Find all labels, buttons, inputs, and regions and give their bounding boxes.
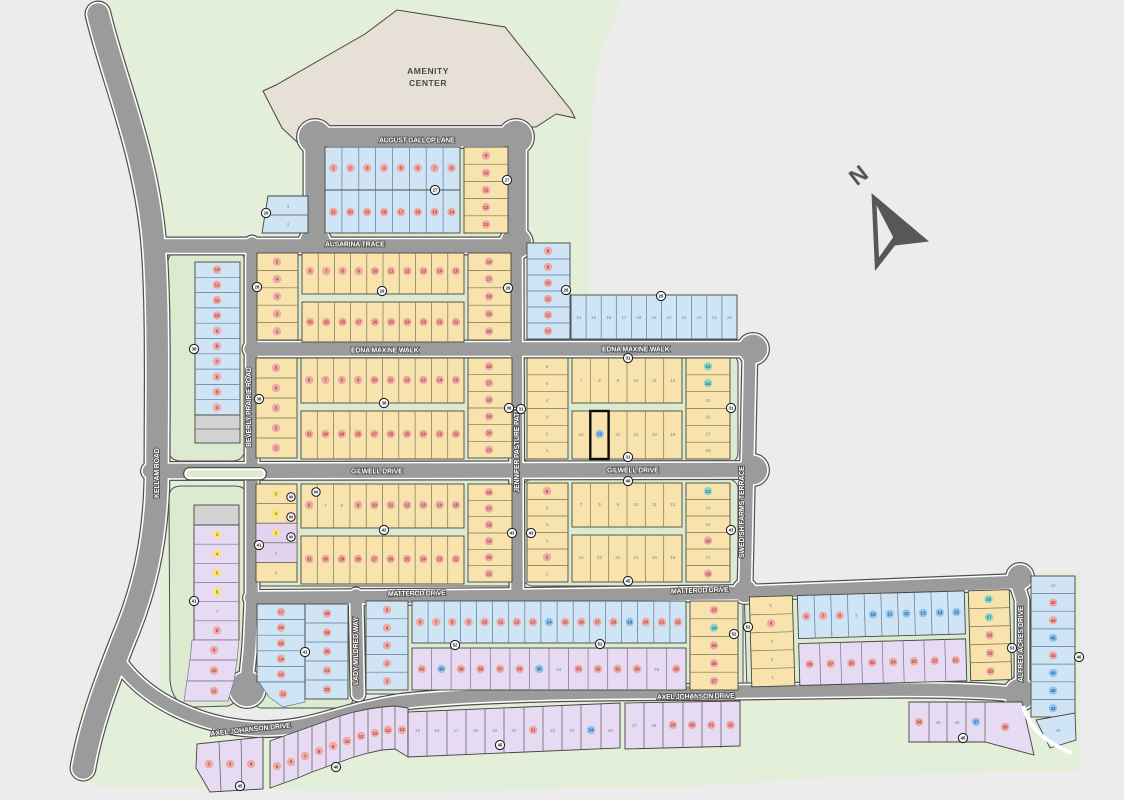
- svg-text:21: 21: [659, 620, 665, 625]
- svg-text:15: 15: [705, 522, 711, 527]
- svg-text:6: 6: [290, 759, 293, 764]
- svg-text:1: 1: [386, 679, 389, 684]
- svg-text:5: 5: [276, 764, 279, 769]
- svg-text:27: 27: [356, 320, 362, 325]
- svg-text:6: 6: [419, 620, 422, 625]
- svg-text:8: 8: [598, 378, 601, 383]
- svg-text:10: 10: [545, 281, 551, 286]
- svg-text:14: 14: [576, 315, 582, 320]
- svg-text:7: 7: [435, 620, 438, 625]
- svg-text:6: 6: [309, 269, 312, 274]
- svg-text:20: 20: [667, 315, 673, 320]
- svg-text:19: 19: [651, 315, 657, 320]
- svg-text:15: 15: [453, 503, 459, 508]
- svg-text:43: 43: [1050, 583, 1056, 588]
- svg-text:9: 9: [332, 744, 335, 749]
- svg-text:15: 15: [705, 398, 711, 403]
- svg-text:11: 11: [215, 298, 220, 303]
- svg-text:6: 6: [308, 378, 311, 383]
- svg-text:21: 21: [634, 432, 640, 437]
- svg-text:40: 40: [1055, 728, 1061, 733]
- svg-text:24: 24: [890, 659, 896, 664]
- svg-text:46: 46: [1077, 655, 1082, 660]
- svg-text:53: 53: [1010, 646, 1015, 651]
- svg-text:22: 22: [675, 620, 681, 625]
- svg-text:14: 14: [937, 610, 943, 615]
- svg-text:GILWELL DRIVE: GILWELL DRIVE: [351, 469, 403, 476]
- svg-text:12: 12: [670, 378, 676, 383]
- svg-text:2: 2: [276, 312, 279, 317]
- svg-text:2: 2: [349, 166, 352, 171]
- svg-text:30: 30: [690, 723, 696, 728]
- svg-text:CENTER: CENTER: [409, 78, 447, 88]
- svg-text:42: 42: [382, 528, 387, 533]
- svg-text:34: 34: [556, 667, 562, 672]
- svg-text:13: 13: [920, 611, 926, 616]
- svg-text:13: 13: [385, 728, 391, 733]
- svg-text:7: 7: [580, 502, 583, 507]
- svg-text:29: 29: [506, 286, 511, 291]
- svg-text:21: 21: [634, 555, 640, 560]
- svg-text:52: 52: [732, 632, 737, 637]
- svg-text:22: 22: [453, 432, 459, 437]
- svg-text:37: 37: [498, 667, 504, 672]
- svg-text:4: 4: [216, 551, 219, 556]
- svg-text:5: 5: [546, 506, 549, 511]
- svg-text:34: 34: [916, 720, 922, 725]
- svg-text:22: 22: [932, 658, 938, 663]
- svg-text:43: 43: [729, 528, 734, 533]
- svg-text:16: 16: [579, 620, 585, 625]
- svg-text:8: 8: [341, 378, 344, 383]
- svg-text:10: 10: [483, 170, 489, 175]
- svg-text:6: 6: [417, 166, 420, 171]
- svg-text:19: 19: [987, 651, 993, 656]
- svg-text:38: 38: [1002, 725, 1008, 730]
- svg-text:19: 19: [670, 432, 676, 437]
- svg-text:12: 12: [280, 692, 286, 697]
- svg-text:9: 9: [357, 378, 360, 383]
- svg-text:23: 23: [437, 557, 443, 562]
- svg-text:14: 14: [437, 378, 443, 383]
- svg-text:9: 9: [357, 503, 360, 508]
- svg-text:7: 7: [580, 378, 583, 383]
- svg-text:27: 27: [632, 723, 638, 728]
- svg-text:11: 11: [388, 503, 393, 508]
- svg-text:43: 43: [510, 531, 515, 536]
- svg-text:1: 1: [275, 570, 278, 575]
- svg-text:5: 5: [400, 166, 403, 171]
- svg-text:20: 20: [652, 432, 658, 437]
- svg-text:6: 6: [216, 374, 219, 379]
- svg-text:11: 11: [212, 689, 217, 694]
- svg-text:22: 22: [615, 432, 621, 437]
- svg-text:45: 45: [498, 743, 503, 748]
- svg-text:6: 6: [546, 364, 549, 369]
- svg-text:21: 21: [531, 728, 537, 733]
- svg-text:21: 21: [453, 320, 459, 325]
- svg-text:10: 10: [214, 313, 220, 318]
- svg-text:15: 15: [453, 269, 459, 274]
- svg-text:18: 18: [486, 397, 492, 402]
- svg-text:12: 12: [404, 378, 410, 383]
- svg-text:25: 25: [404, 557, 410, 562]
- svg-text:24: 24: [421, 432, 427, 437]
- svg-text:23: 23: [597, 432, 603, 437]
- svg-text:10: 10: [482, 620, 488, 625]
- svg-text:24: 24: [727, 315, 733, 320]
- svg-text:20: 20: [486, 555, 492, 560]
- svg-text:52: 52: [746, 625, 751, 630]
- svg-text:AMENITY: AMENITY: [407, 66, 449, 76]
- svg-text:15: 15: [591, 315, 597, 320]
- svg-text:2: 2: [386, 661, 389, 666]
- svg-text:13: 13: [421, 378, 427, 383]
- svg-text:15: 15: [415, 728, 421, 733]
- svg-text:3: 3: [366, 166, 369, 171]
- svg-text:12: 12: [514, 620, 520, 625]
- svg-text:9: 9: [617, 378, 620, 383]
- svg-text:3: 3: [275, 406, 278, 411]
- svg-text:10: 10: [634, 378, 640, 383]
- svg-text:41: 41: [192, 599, 197, 604]
- svg-text:13: 13: [278, 672, 284, 677]
- svg-text:3: 3: [276, 294, 279, 299]
- svg-text:7: 7: [216, 359, 219, 364]
- svg-text:2: 2: [546, 431, 549, 436]
- svg-text:29: 29: [339, 432, 345, 437]
- svg-text:24: 24: [711, 625, 717, 630]
- svg-text:27: 27: [505, 178, 510, 183]
- svg-text:11: 11: [652, 378, 657, 383]
- svg-text:12: 12: [483, 205, 489, 210]
- svg-text:19: 19: [492, 728, 498, 733]
- svg-text:17: 17: [986, 615, 992, 620]
- svg-text:3: 3: [216, 532, 219, 537]
- svg-text:13: 13: [530, 620, 536, 625]
- svg-text:5: 5: [386, 608, 389, 613]
- svg-text:1: 1: [275, 446, 278, 451]
- svg-text:12: 12: [904, 611, 910, 616]
- svg-text:23: 23: [569, 728, 575, 733]
- svg-text:30: 30: [323, 432, 329, 437]
- svg-text:LADY MILDRED WAY: LADY MILDRED WAY: [353, 617, 360, 685]
- svg-text:31: 31: [307, 557, 313, 562]
- svg-text:12: 12: [404, 503, 410, 508]
- svg-text:7: 7: [433, 166, 436, 171]
- svg-text:36: 36: [507, 406, 512, 411]
- svg-text:46: 46: [334, 765, 339, 770]
- svg-text:26: 26: [711, 661, 717, 666]
- svg-text:43: 43: [1050, 671, 1056, 676]
- svg-text:14: 14: [705, 506, 711, 511]
- svg-text:22: 22: [437, 320, 443, 325]
- svg-text:11: 11: [388, 378, 393, 383]
- svg-text:5: 5: [275, 366, 278, 371]
- svg-text:10: 10: [372, 378, 378, 383]
- svg-text:25: 25: [389, 320, 395, 325]
- svg-text:28: 28: [255, 285, 260, 290]
- svg-text:21: 21: [331, 210, 337, 215]
- svg-text:23: 23: [711, 608, 717, 613]
- svg-text:16: 16: [486, 364, 492, 369]
- svg-text:30: 30: [308, 320, 314, 325]
- svg-text:18: 18: [324, 611, 330, 616]
- svg-text:27: 27: [372, 557, 378, 562]
- svg-text:45: 45: [626, 579, 631, 584]
- svg-text:M: M: [289, 515, 293, 520]
- svg-text:18: 18: [611, 620, 617, 625]
- svg-text:23: 23: [421, 320, 427, 325]
- svg-text:26: 26: [264, 211, 269, 216]
- svg-text:15: 15: [954, 610, 960, 615]
- svg-text:2: 2: [208, 762, 211, 767]
- svg-text:17: 17: [486, 277, 492, 282]
- svg-text:22: 22: [697, 315, 703, 320]
- svg-text:14: 14: [705, 381, 711, 386]
- svg-text:13: 13: [705, 364, 711, 369]
- svg-text:9: 9: [547, 265, 550, 270]
- svg-text:19: 19: [670, 555, 676, 560]
- svg-text:8: 8: [318, 749, 321, 754]
- svg-text:42: 42: [1050, 600, 1056, 605]
- svg-text:28: 28: [356, 557, 362, 562]
- svg-text:36: 36: [257, 397, 262, 402]
- svg-text:17: 17: [595, 620, 601, 625]
- svg-text:14: 14: [278, 656, 284, 661]
- svg-text:9: 9: [485, 153, 488, 158]
- svg-text:19: 19: [486, 312, 492, 317]
- svg-text:12: 12: [372, 731, 378, 736]
- svg-text:27: 27: [828, 661, 834, 666]
- svg-text:37: 37: [973, 720, 979, 725]
- svg-text:19: 19: [324, 630, 330, 635]
- svg-text:23: 23: [911, 659, 917, 664]
- svg-text:25: 25: [870, 660, 876, 665]
- svg-text:18: 18: [381, 210, 387, 215]
- svg-text:8: 8: [216, 628, 219, 633]
- svg-text:13: 13: [421, 503, 427, 508]
- svg-text:31: 31: [626, 455, 631, 460]
- svg-text:AXEL JOHANSON DRIVE: AXEL JOHANSON DRIVE: [657, 693, 735, 701]
- svg-text:4: 4: [546, 522, 549, 527]
- svg-text:16: 16: [434, 728, 440, 733]
- svg-text:11: 11: [652, 502, 657, 507]
- svg-text:27: 27: [433, 188, 438, 193]
- svg-text:7: 7: [216, 609, 219, 614]
- svg-text:32: 32: [728, 723, 734, 728]
- svg-text:18: 18: [486, 294, 492, 299]
- svg-text:9: 9: [216, 328, 219, 333]
- svg-text:15: 15: [453, 378, 459, 383]
- svg-text:22: 22: [453, 557, 459, 562]
- svg-text:22: 22: [615, 555, 621, 560]
- svg-text:BEVERLY PRAIRIE ROAD: BEVERLY PRAIRIE ROAD: [246, 367, 253, 447]
- svg-text:29: 29: [380, 289, 385, 294]
- svg-text:41: 41: [1050, 706, 1056, 711]
- svg-text:10: 10: [211, 668, 217, 673]
- svg-text:8: 8: [598, 502, 601, 507]
- svg-text:45: 45: [1050, 635, 1056, 640]
- svg-text:14: 14: [437, 269, 443, 274]
- svg-text:11: 11: [484, 188, 489, 193]
- svg-text:21: 21: [682, 315, 688, 320]
- svg-text:14: 14: [547, 620, 553, 625]
- svg-text:45: 45: [238, 784, 243, 789]
- svg-text:26: 26: [564, 288, 569, 293]
- svg-text:20: 20: [511, 728, 517, 733]
- svg-text:21: 21: [486, 571, 492, 576]
- svg-text:29: 29: [654, 667, 660, 672]
- svg-text:43: 43: [529, 531, 534, 536]
- svg-text:44: 44: [1050, 653, 1056, 658]
- svg-text:27: 27: [711, 679, 717, 684]
- svg-text:16: 16: [705, 538, 711, 543]
- svg-text:42: 42: [1050, 688, 1056, 693]
- svg-text:21: 21: [324, 668, 330, 673]
- svg-text:31: 31: [519, 407, 524, 412]
- svg-text:40: 40: [439, 667, 445, 672]
- svg-text:24: 24: [405, 320, 411, 325]
- svg-text:36: 36: [382, 401, 387, 406]
- svg-text:20: 20: [652, 555, 658, 560]
- svg-text:12: 12: [214, 283, 220, 288]
- svg-text:23: 23: [712, 315, 718, 320]
- svg-text:45: 45: [961, 736, 966, 741]
- svg-text:1: 1: [546, 572, 549, 577]
- svg-text:19: 19: [627, 620, 633, 625]
- svg-text:ALFRED ACRES DRIVE: ALFRED ACRES DRIVE: [1018, 606, 1025, 682]
- svg-text:16: 16: [986, 597, 992, 602]
- svg-text:6: 6: [216, 590, 219, 595]
- svg-text:22: 22: [324, 687, 330, 692]
- svg-text:24: 24: [579, 432, 585, 437]
- svg-text:23: 23: [597, 555, 603, 560]
- svg-text:33: 33: [576, 667, 582, 672]
- svg-text:4: 4: [546, 398, 549, 403]
- svg-text:41: 41: [303, 650, 308, 655]
- svg-text:2: 2: [275, 550, 278, 555]
- svg-text:24: 24: [588, 728, 594, 733]
- svg-text:9: 9: [617, 502, 620, 507]
- svg-text:26: 26: [849, 661, 855, 666]
- svg-text:17: 17: [705, 431, 711, 436]
- svg-text:14: 14: [437, 503, 443, 508]
- svg-text:23: 23: [437, 432, 443, 437]
- svg-text:30: 30: [635, 667, 641, 672]
- svg-text:1: 1: [546, 448, 549, 453]
- svg-text:1: 1: [276, 329, 279, 334]
- svg-text:KELLAM ROAD: KELLAM ROAD: [154, 448, 161, 498]
- svg-text:5: 5: [275, 491, 278, 496]
- svg-text:24: 24: [579, 555, 585, 560]
- svg-text:8: 8: [341, 269, 344, 274]
- svg-text:10: 10: [344, 739, 350, 744]
- svg-text:9: 9: [467, 620, 470, 625]
- svg-text:13: 13: [705, 489, 711, 494]
- svg-text:4: 4: [216, 405, 219, 410]
- svg-text:29: 29: [324, 320, 330, 325]
- svg-text:12: 12: [670, 502, 676, 507]
- svg-text:17: 17: [621, 315, 627, 320]
- svg-text:16: 16: [415, 210, 421, 215]
- svg-text:41: 41: [419, 667, 425, 672]
- svg-text:20: 20: [643, 620, 649, 625]
- svg-text:7: 7: [324, 378, 327, 383]
- svg-text:17: 17: [486, 381, 492, 386]
- svg-text:31: 31: [729, 406, 734, 411]
- svg-text:21: 21: [486, 447, 492, 452]
- svg-text:3: 3: [386, 643, 389, 648]
- svg-text:M: M: [289, 535, 293, 540]
- svg-text:8: 8: [450, 166, 453, 171]
- svg-text:JENNIFER PASTURE PATH: JENNIFER PASTURE PATH: [514, 408, 521, 493]
- svg-text:10: 10: [372, 503, 378, 508]
- svg-text:20: 20: [486, 329, 492, 334]
- svg-text:15: 15: [563, 620, 569, 625]
- svg-text:2: 2: [546, 555, 549, 560]
- svg-text:3: 3: [287, 204, 290, 209]
- svg-text:5: 5: [216, 390, 219, 395]
- svg-text:20: 20: [988, 669, 994, 674]
- svg-text:31: 31: [709, 723, 715, 728]
- svg-text:25: 25: [711, 643, 717, 648]
- svg-text:17: 17: [454, 728, 460, 733]
- svg-text:2: 2: [275, 426, 278, 431]
- svg-text:10: 10: [870, 612, 876, 617]
- svg-text:16: 16: [486, 490, 492, 495]
- svg-text:30: 30: [323, 557, 329, 562]
- svg-text:16: 16: [606, 315, 612, 320]
- svg-text:11: 11: [887, 612, 892, 617]
- svg-text:16: 16: [705, 415, 711, 420]
- svg-text:38: 38: [478, 667, 484, 672]
- svg-text:52: 52: [453, 643, 458, 648]
- svg-text:31: 31: [307, 432, 313, 437]
- svg-text:28: 28: [807, 662, 813, 667]
- svg-text:4: 4: [275, 511, 278, 516]
- svg-text:52: 52: [598, 642, 603, 647]
- svg-text:5: 5: [546, 381, 549, 386]
- svg-text:4: 4: [383, 166, 386, 171]
- svg-text:11: 11: [389, 269, 394, 274]
- svg-text:26: 26: [388, 432, 394, 437]
- svg-text:1: 1: [332, 166, 335, 171]
- svg-text:19: 19: [486, 539, 492, 544]
- svg-text:3: 3: [275, 531, 278, 536]
- svg-text:26: 26: [388, 557, 394, 562]
- svg-text:25: 25: [608, 728, 614, 733]
- svg-text:9: 9: [213, 648, 216, 653]
- svg-text:13: 13: [421, 269, 427, 274]
- svg-text:4: 4: [250, 762, 253, 767]
- svg-text:15: 15: [278, 641, 284, 646]
- svg-text:44: 44: [1050, 618, 1056, 623]
- svg-text:40: 40: [626, 479, 631, 484]
- svg-text:28: 28: [356, 432, 362, 437]
- svg-text:8: 8: [216, 344, 219, 349]
- svg-text:14: 14: [449, 210, 455, 215]
- svg-text:3: 3: [546, 539, 549, 544]
- svg-text:19: 19: [486, 414, 492, 419]
- svg-text:19: 19: [365, 210, 371, 215]
- svg-text:24: 24: [421, 557, 427, 562]
- svg-text:36: 36: [517, 667, 523, 672]
- svg-text:16: 16: [486, 259, 492, 264]
- svg-text:17: 17: [705, 555, 711, 560]
- svg-text:5: 5: [216, 571, 219, 576]
- svg-text:3: 3: [229, 762, 232, 767]
